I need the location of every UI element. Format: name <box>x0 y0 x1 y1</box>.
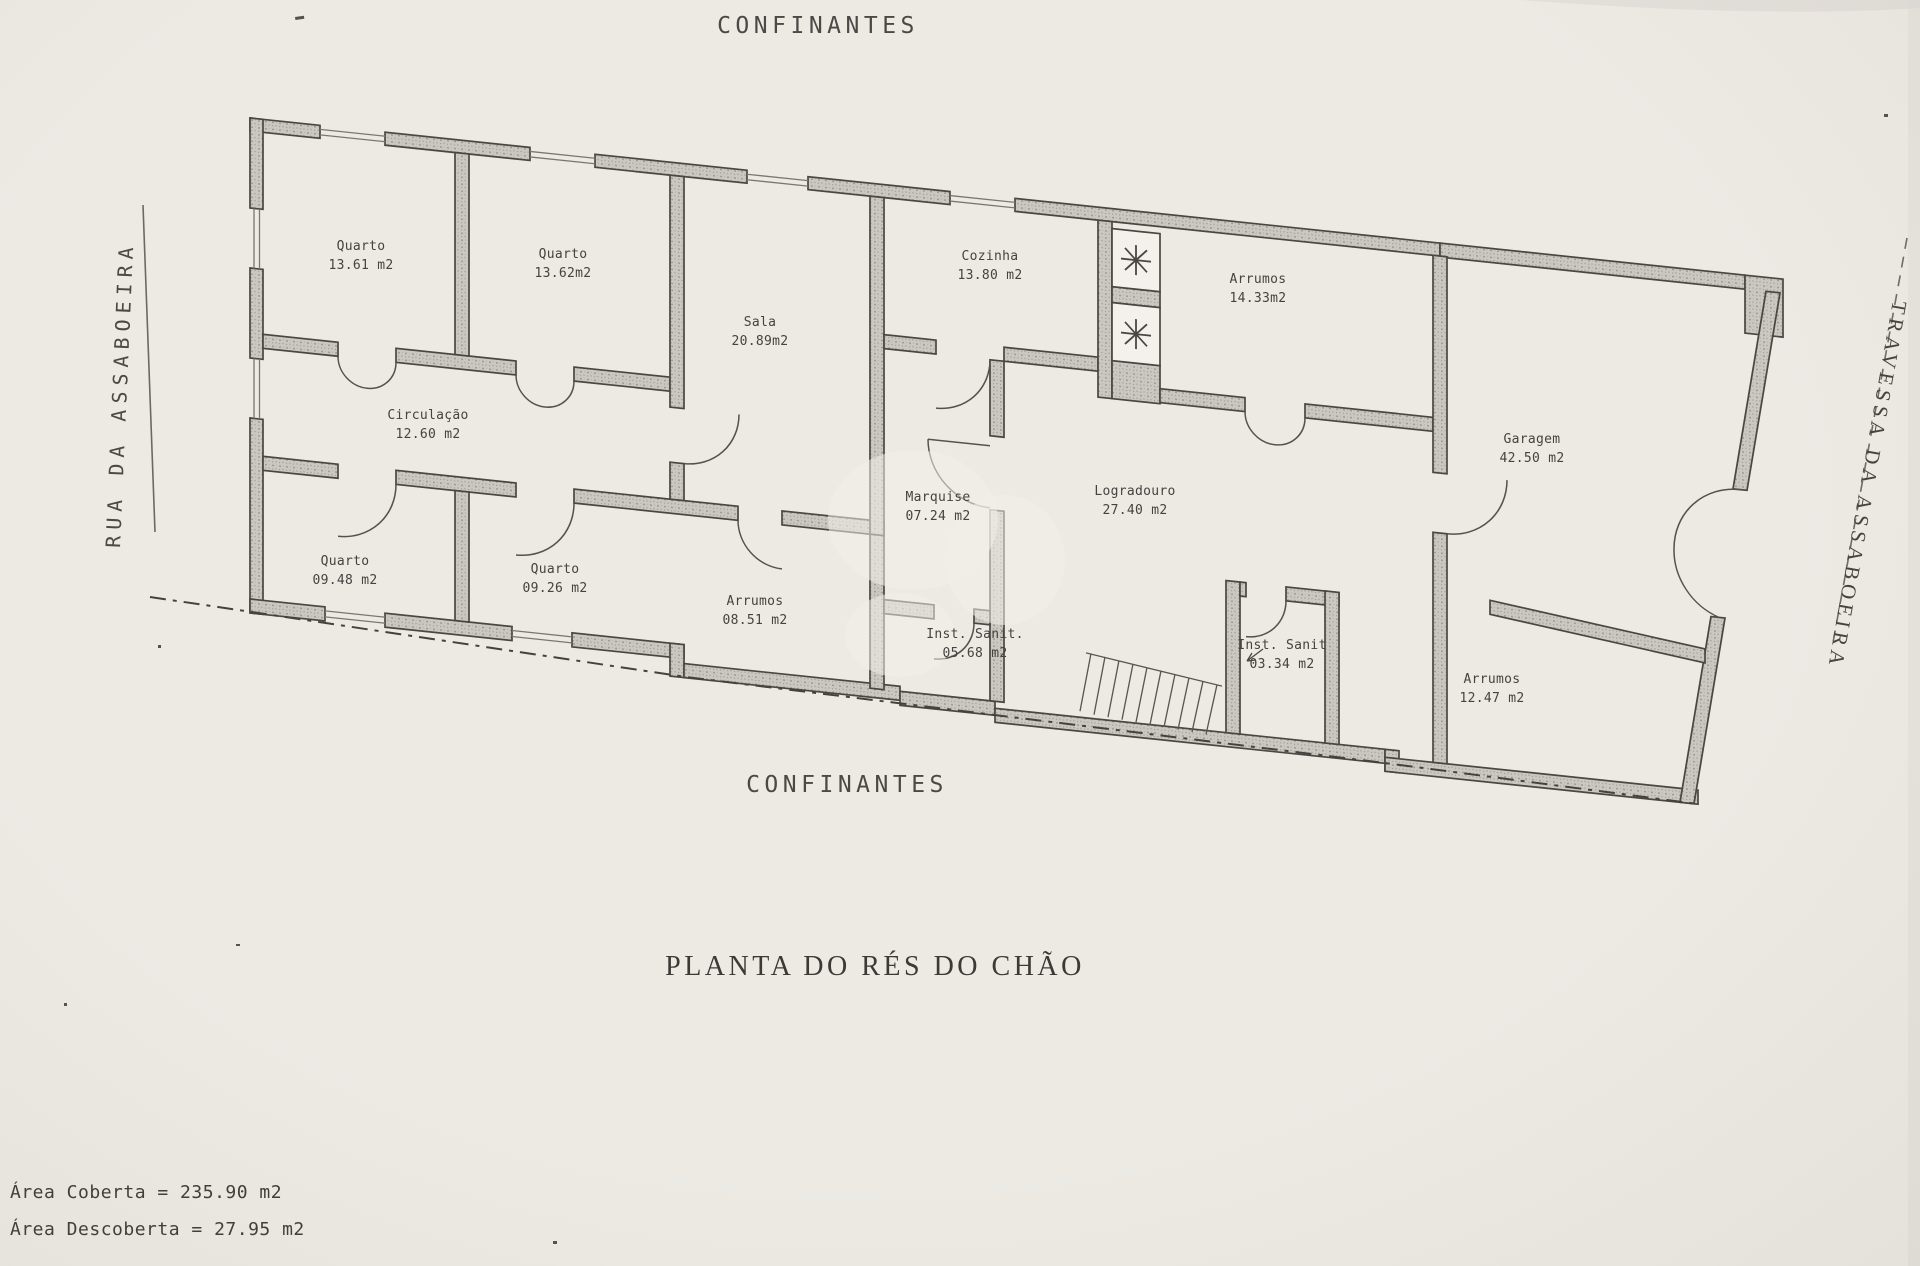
room-label-cozinha: Cozinha13.80 m2 <box>957 249 1022 283</box>
room-label-circulacao: Circulação12.60 m2 <box>387 408 468 442</box>
area-covered-note: Área Coberta = 235.90 m2 <box>10 1181 282 1203</box>
room-label-sala: Sala20.89m2 <box>732 315 789 349</box>
boundary-label-bottom: CONFINANTES <box>746 772 948 798</box>
scanned-floorplan-page: CONFINANTES CONFINANTES RUA DA ASSABOEIR… <box>0 0 1920 1266</box>
street-label-travessa-da-assaboeira: TRAVESSA DA ASSABOEIRA <box>1823 299 1912 672</box>
street-label-rua-da-assaboeira: RUA DA ASSABOEIRA <box>101 241 138 548</box>
room-label-arrumos-1433: Arrumos14.33m2 <box>1230 272 1287 306</box>
plan-title: PLANTA DO RÉS DO CHÃO <box>665 951 1085 982</box>
boundary-label-top: CONFINANTES <box>717 13 919 39</box>
room-label-arrumos-0851: Arrumos08.51 m2 <box>722 594 787 628</box>
area-uncovered-note: Área Descoberta = 27.95 m2 <box>10 1218 305 1240</box>
room-label-quarto-3: Quarto09.48 m2 <box>312 554 377 588</box>
room-label-garagem: Garagem42.50 m2 <box>1499 432 1564 466</box>
room-label-quarto-1: Quarto13.61 m2 <box>328 239 393 273</box>
rua-street-line <box>143 205 155 532</box>
floor-plan-canvas: CONFINANTES CONFINANTES RUA DA ASSABOEIR… <box>0 0 1920 1266</box>
room-label-quarto-2: Quarto13.62m2 <box>535 247 592 281</box>
room-label-arrumos-1247: Arrumos12.47 m2 <box>1459 672 1524 706</box>
room-label-quarto-4: Quarto09.26 m2 <box>522 562 587 596</box>
room-label-logradouro: Logradouro27.40 m2 <box>1094 484 1175 518</box>
scan-glare <box>828 450 1065 677</box>
